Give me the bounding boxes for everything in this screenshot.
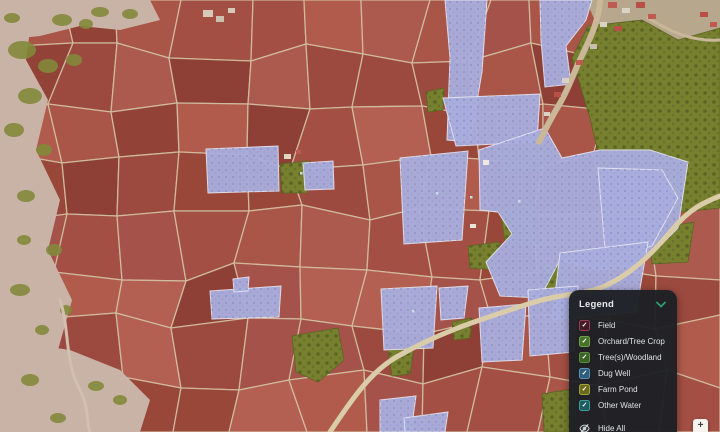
- legend-header: Legend: [579, 299, 667, 310]
- building: [562, 78, 569, 83]
- dug-well-marker[interactable]: [518, 200, 521, 203]
- building: [203, 10, 213, 17]
- building: [470, 224, 476, 228]
- plus-icon: +: [698, 419, 704, 432]
- legend-item-label: Field: [598, 321, 615, 330]
- building: [590, 44, 597, 49]
- field-parcel: [111, 103, 179, 157]
- building: [284, 154, 291, 159]
- field-parcel: [467, 367, 550, 432]
- tree-blob: [79, 19, 93, 29]
- eye-off-icon: [579, 423, 590, 432]
- dug-well-marker[interactable]: [300, 172, 303, 175]
- building: [554, 92, 561, 97]
- tree-blob: [4, 13, 20, 23]
- legend-item[interactable]: ✓Tree(s)/Woodland: [579, 349, 669, 365]
- orchard-texture: [439, 286, 468, 320]
- building: [700, 12, 708, 17]
- building: [614, 26, 622, 31]
- hide-all-label: Hide All: [598, 424, 625, 432]
- legend-item-label: Tree(s)/Woodland: [598, 353, 662, 362]
- field-parcel: [173, 388, 239, 432]
- chevron-down-icon[interactable]: [655, 300, 667, 309]
- checkbox-icon[interactable]: ✓: [579, 384, 590, 395]
- field-parcel: [117, 152, 179, 216]
- tree-blob: [38, 59, 58, 73]
- checkbox-icon[interactable]: ✓: [579, 400, 590, 411]
- legend-panel: Legend ✓Field✓Orchard/Tree Crop✓Tree(s)/…: [569, 290, 677, 432]
- zoom-in-button[interactable]: +: [693, 419, 708, 432]
- tree-blob: [35, 325, 49, 335]
- building: [636, 2, 645, 8]
- tree-blob: [17, 190, 35, 202]
- hide-all-button[interactable]: Hide All: [579, 420, 669, 432]
- building: [483, 160, 489, 165]
- tree-blob: [8, 41, 36, 59]
- woodland-texture: [426, 88, 444, 112]
- tree-blob: [66, 54, 82, 66]
- building: [216, 16, 224, 22]
- building: [622, 8, 630, 13]
- field-parcel: [169, 58, 251, 104]
- dug-well-marker[interactable]: [412, 310, 415, 313]
- orchard-texture: [206, 146, 279, 193]
- legend-item-label: Other Water: [598, 401, 641, 410]
- checkbox-icon[interactable]: ✓: [579, 352, 590, 363]
- field-parcel: [62, 157, 119, 216]
- checkbox-icon[interactable]: ✓: [579, 320, 590, 331]
- tree-blob: [4, 123, 24, 137]
- legend-item-list: ✓Field✓Orchard/Tree Crop✓Tree(s)/Woodlan…: [577, 317, 669, 413]
- tree-blob: [21, 374, 39, 386]
- building: [296, 150, 301, 154]
- legend-item[interactable]: ✓Field: [579, 317, 669, 333]
- tree-blob: [18, 88, 42, 104]
- legend-item-label: Dug Well: [598, 369, 630, 378]
- field-parcel: [171, 318, 248, 390]
- legend-item[interactable]: ✓Orchard/Tree Crop: [579, 333, 669, 349]
- building: [648, 14, 656, 19]
- tree-blob: [46, 244, 62, 256]
- building: [544, 112, 550, 116]
- tree-blob: [122, 9, 138, 19]
- field-parcel: [169, 0, 253, 61]
- tree-blob: [36, 144, 52, 156]
- tree-blob: [17, 235, 31, 245]
- tree-blob: [91, 7, 109, 17]
- legend-item[interactable]: ✓Other Water: [579, 397, 669, 413]
- dug-well-marker[interactable]: [470, 196, 473, 199]
- tree-blob: [113, 395, 127, 405]
- legend-item-label: Orchard/Tree Crop: [598, 337, 665, 346]
- building: [600, 22, 607, 27]
- tree-blob: [52, 14, 72, 26]
- tree-blob: [88, 381, 104, 391]
- field-parcel: [54, 214, 122, 280]
- tree-blob: [50, 413, 66, 423]
- building: [710, 22, 717, 27]
- building: [228, 8, 235, 13]
- orchard-texture: [303, 161, 334, 190]
- legend-item-label: Farm Pond: [598, 385, 638, 394]
- orchard-texture: [400, 151, 468, 244]
- legend-item[interactable]: ✓Dug Well: [579, 365, 669, 381]
- dug-well-marker[interactable]: [436, 192, 439, 195]
- legend-title: Legend: [579, 299, 614, 310]
- checkbox-icon[interactable]: ✓: [579, 336, 590, 347]
- legend-item[interactable]: ✓Farm Pond: [579, 381, 669, 397]
- map-view: Legend ✓Field✓Orchard/Tree Crop✓Tree(s)/…: [0, 0, 720, 432]
- orchard-texture: [233, 277, 249, 292]
- building: [608, 2, 617, 8]
- tree-blob: [10, 284, 30, 296]
- checkbox-icon[interactable]: ✓: [579, 368, 590, 379]
- building: [576, 60, 583, 65]
